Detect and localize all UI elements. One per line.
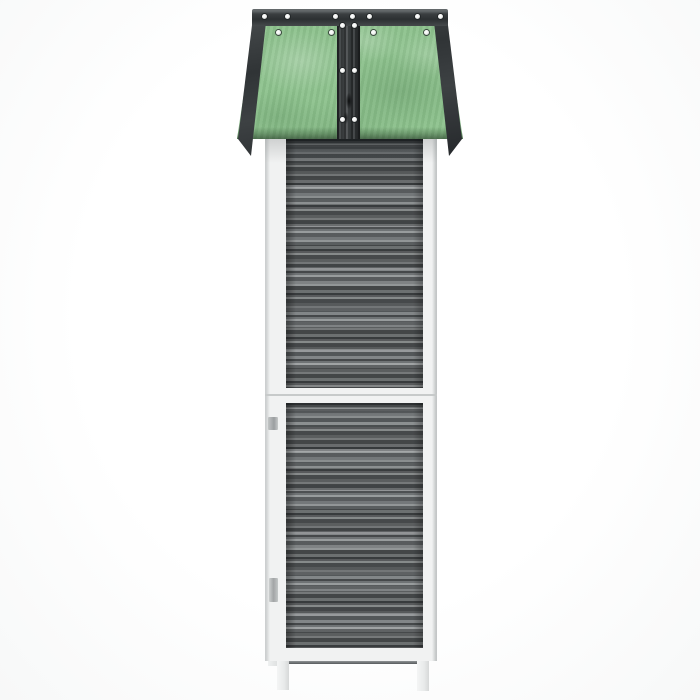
shed-roof xyxy=(237,8,463,160)
bottom-rail-shadow xyxy=(289,661,417,664)
screw-icon xyxy=(340,117,345,122)
screw-icon xyxy=(276,30,281,35)
screw-icon xyxy=(340,68,345,73)
screw-icon xyxy=(333,14,338,19)
product-photo-garden-shed-side xyxy=(0,0,700,700)
side-panel-lower xyxy=(286,403,423,648)
screw-icon xyxy=(350,14,355,19)
hinge-upper xyxy=(268,417,278,430)
leg-left xyxy=(277,661,289,690)
screw-icon xyxy=(352,23,357,28)
screw-icon xyxy=(329,30,334,35)
screw-icon xyxy=(367,14,372,19)
side-panel-upper xyxy=(286,139,423,388)
leg-right xyxy=(417,661,429,691)
screw-icon xyxy=(340,23,345,28)
screw-icon xyxy=(424,30,429,35)
screw-icon xyxy=(438,14,443,19)
screw-icon xyxy=(262,14,267,19)
screw-icon xyxy=(352,117,357,122)
screw-icon xyxy=(285,14,290,19)
mid-rail-seam xyxy=(265,394,437,396)
screw-icon xyxy=(415,14,420,19)
screw-icon xyxy=(352,68,357,73)
shed-body xyxy=(265,139,437,661)
hinge-lower xyxy=(269,578,278,602)
screw-icon xyxy=(371,30,376,35)
